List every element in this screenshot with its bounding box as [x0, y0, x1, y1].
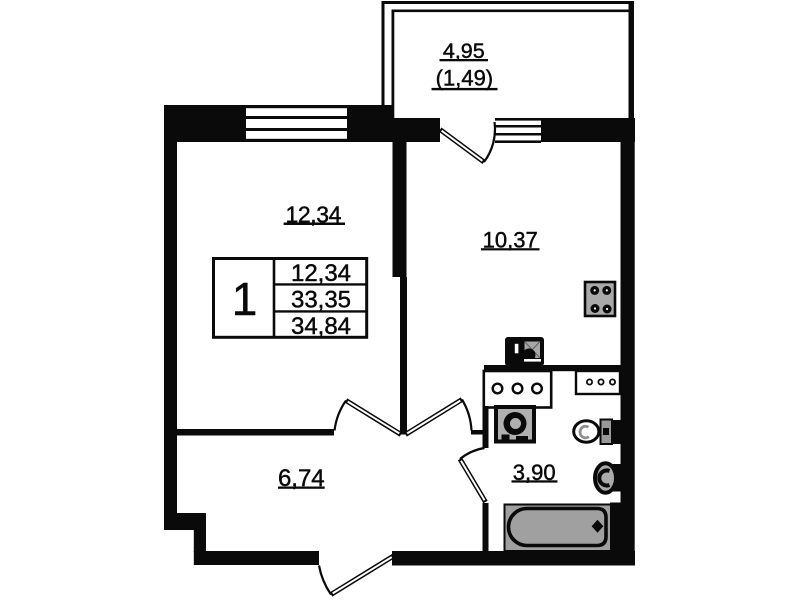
svg-text:33,35: 33,35	[291, 287, 351, 314]
svg-text:12,34: 12,34	[291, 260, 351, 287]
svg-text:1: 1	[232, 273, 258, 325]
svg-text:(1,49): (1,49)	[436, 66, 493, 91]
svg-text:34,84: 34,84	[291, 313, 351, 340]
